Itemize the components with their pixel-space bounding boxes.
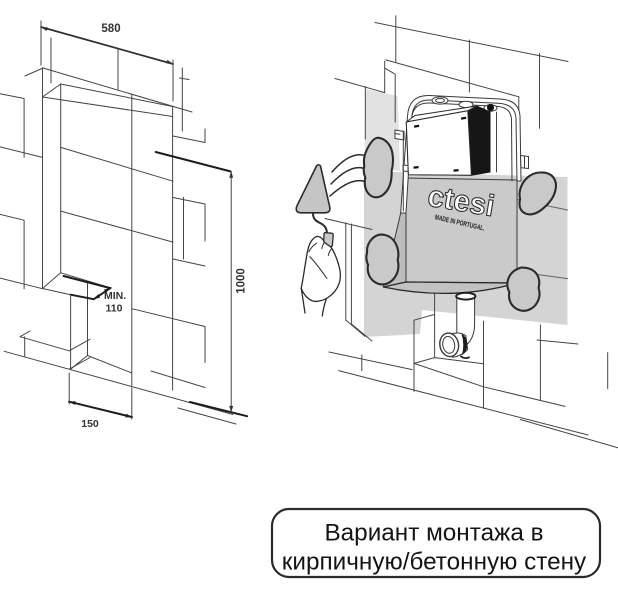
svg-text:1000: 1000 bbox=[236, 268, 248, 294]
svg-text:110: 110 bbox=[106, 303, 123, 315]
svg-text:Вариант монтажа в: Вариант монтажа в bbox=[324, 520, 543, 547]
svg-text:MIN.: MIN. bbox=[104, 290, 126, 302]
svg-text:580: 580 bbox=[101, 23, 120, 35]
svg-text:150: 150 bbox=[81, 418, 99, 430]
svg-text:кирпичную/бетонную стену: кирпичную/бетонную стену bbox=[282, 549, 587, 576]
